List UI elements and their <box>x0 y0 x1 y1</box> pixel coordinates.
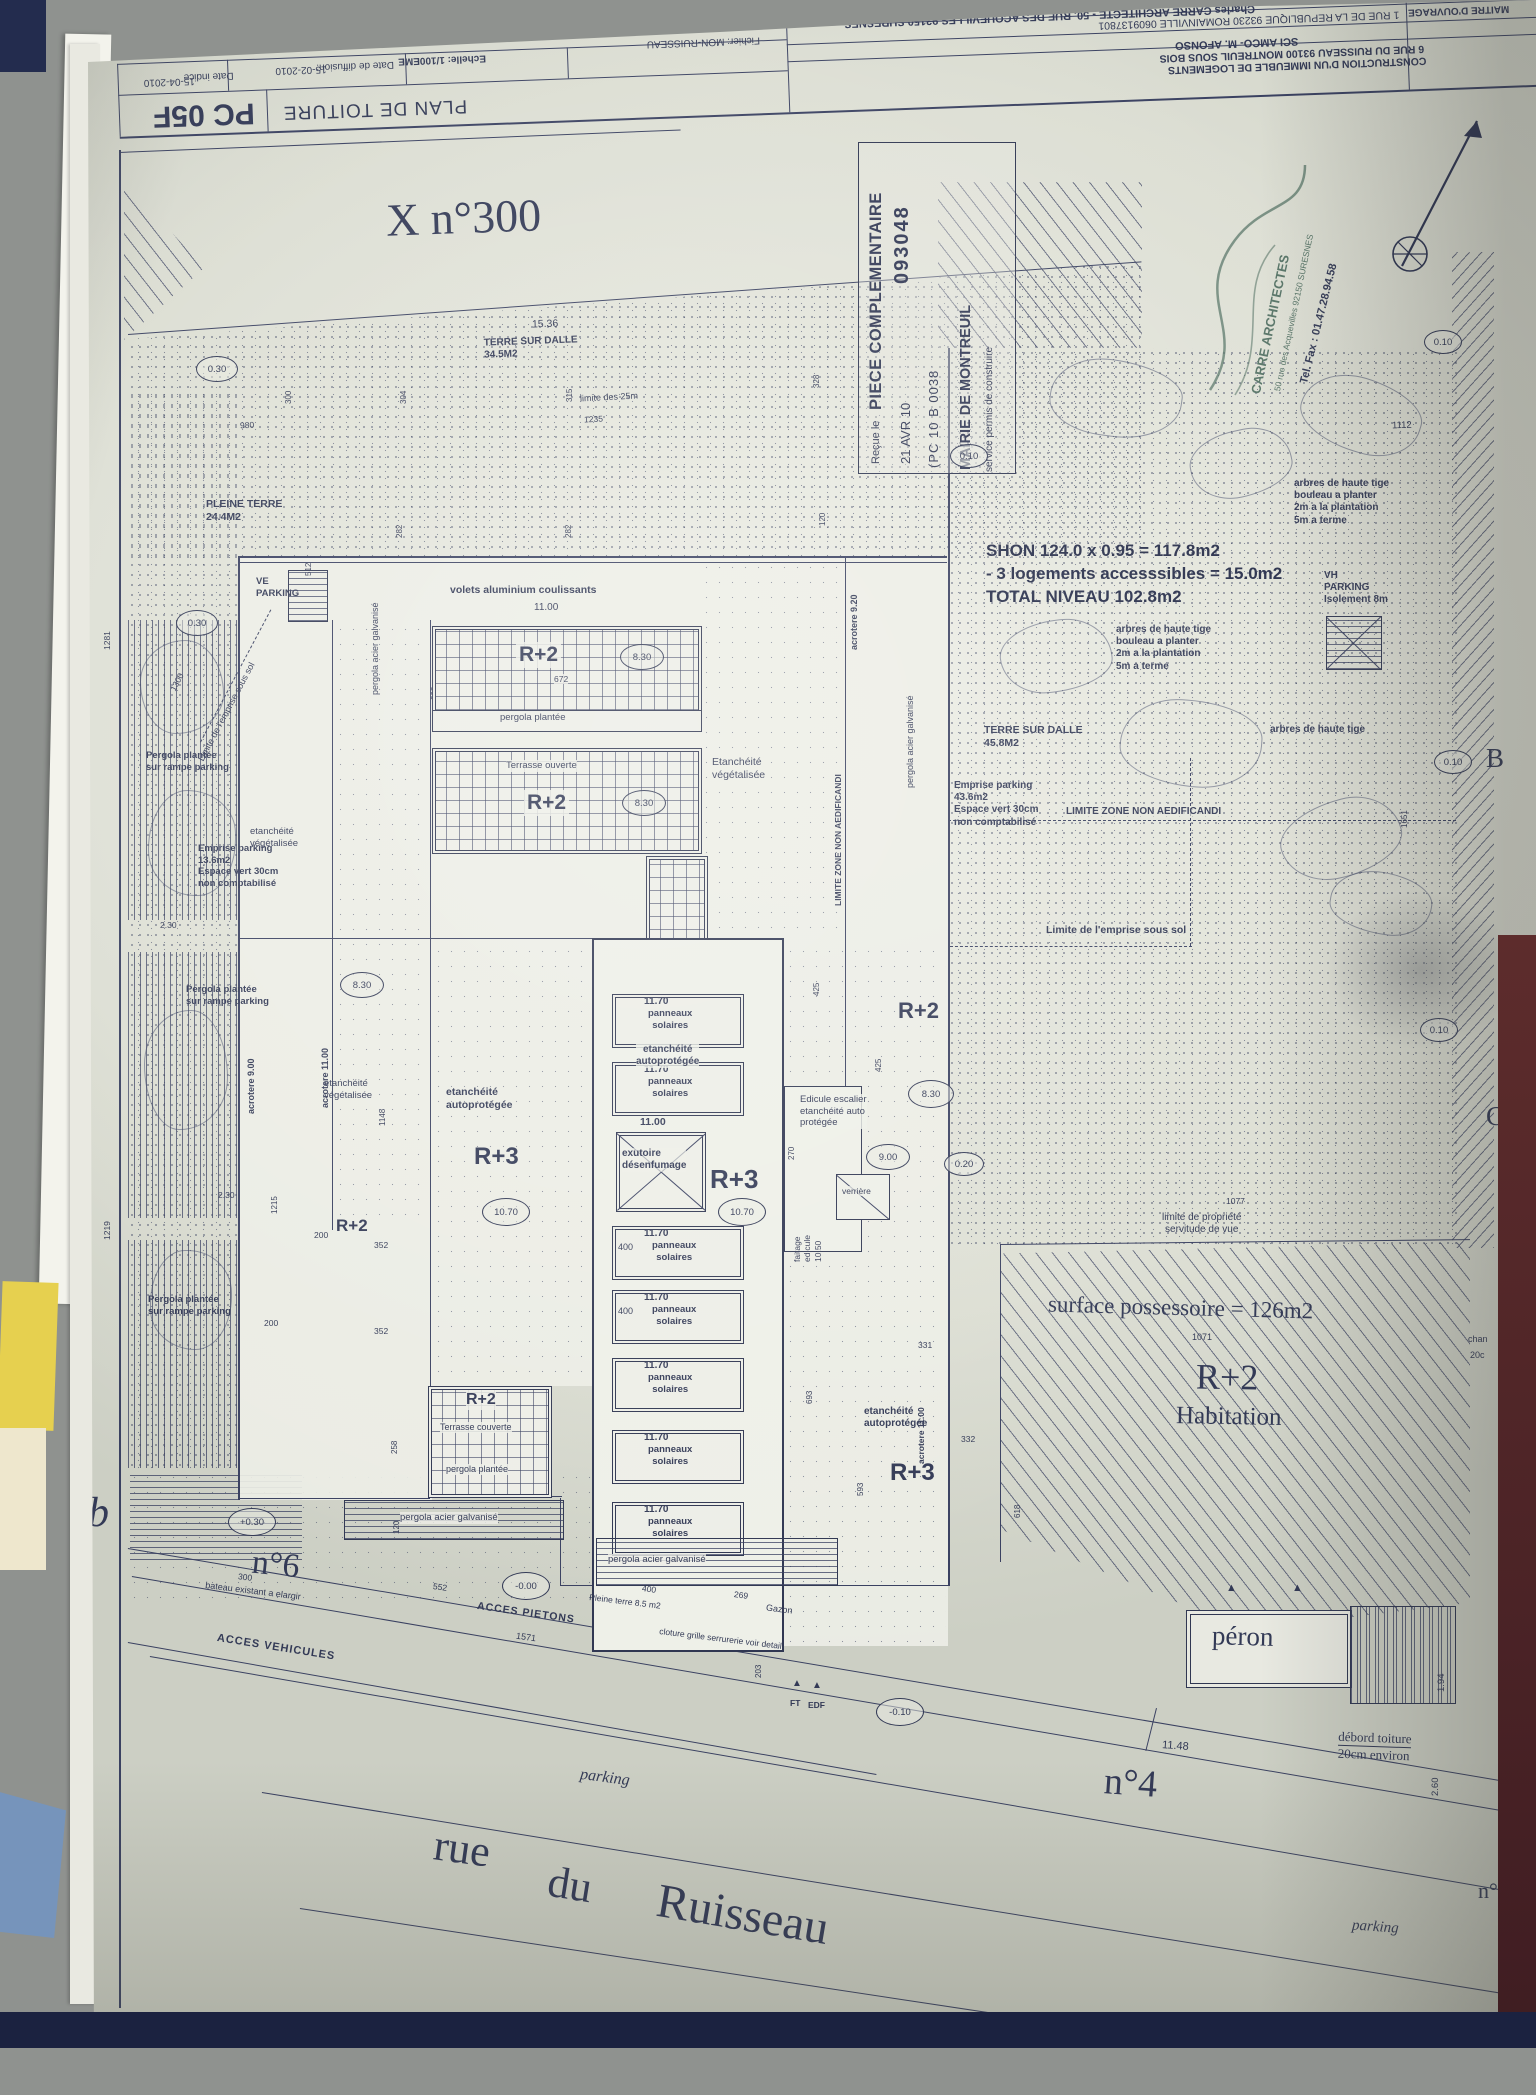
limite-emprise-line <box>950 946 1192 947</box>
label-acces-vehicules: ACCES VEHICULES <box>216 1632 336 1664</box>
title-block-line <box>567 47 569 78</box>
level-label: R+2 <box>524 790 569 816</box>
circle-level: +0.30 <box>228 1508 276 1536</box>
label-line: autoprotégée <box>864 1418 927 1430</box>
dim-label: 1281 <box>102 631 112 650</box>
dim-label: 618 <box>1013 1505 1023 1518</box>
shon-line1: SHON 124.0 x 0.95 = 117.8m2 <box>986 540 1282 563</box>
photo-of-plan: { "colors": { "paper": "#e3e4dc", "ink":… <box>0 0 1536 2048</box>
label-limite-zone-v: LIMITE ZONE NON AEDIFICANDI <box>833 774 843 906</box>
label-line: solaires <box>648 1384 692 1396</box>
label-pergola-plantee: pergola plantée <box>500 712 566 724</box>
maroon-strip-right <box>1498 935 1536 2048</box>
label-line: 5m a terme <box>1116 661 1211 673</box>
label-line: panneaux <box>648 1444 692 1456</box>
roof-center-dots <box>334 622 430 1228</box>
label-line: Isolement 8m <box>1324 594 1388 606</box>
dim-label: 11.00 <box>534 602 558 614</box>
label-line: exutoire <box>622 1148 686 1160</box>
label-peron: péron <box>1212 1619 1274 1654</box>
folder-blue-corner <box>0 1786 66 1938</box>
label-line: solaires <box>648 1020 692 1032</box>
label-acrotere: acrotere 9.20 <box>849 594 860 650</box>
label-verriere: verrière <box>842 1186 871 1196</box>
dim-label: 200 <box>314 1230 328 1240</box>
circle-value: 0.20 <box>955 1159 974 1170</box>
label-line: sur rampe parking <box>146 762 229 774</box>
dim-label: 282 <box>564 525 574 538</box>
label-line: non comptabilisé <box>198 878 278 890</box>
building-edge <box>430 620 431 1386</box>
label-line: panneaux <box>648 1076 692 1088</box>
label-line: panneaux <box>652 1240 696 1252</box>
dim-label: 1235 <box>584 414 603 425</box>
circle-value: 8.30 <box>635 798 654 809</box>
label-pergola-acier: pergola acier galvanisé <box>608 1554 706 1566</box>
circle-value: 10.70 <box>494 1207 518 1218</box>
dim-label: 672 <box>554 674 568 684</box>
label-habitation: Habitation <box>1176 1401 1282 1433</box>
tree-outline <box>144 1010 228 1130</box>
label-line: PLEINE TERRE <box>206 498 282 511</box>
plan-title: X n°300 <box>385 187 542 248</box>
dim-label: 315 <box>565 389 575 402</box>
label-line: solaires <box>648 1456 692 1468</box>
margin-letter-b: B <box>1486 742 1504 775</box>
label-pergola-plantee: pergola plantée <box>446 1464 508 1475</box>
dim-label: 331 <box>918 1340 932 1350</box>
label-arbres: arbres de haute tige <box>1270 724 1365 736</box>
circle-level: 8.30 <box>340 972 384 998</box>
sheet-title: PLAN DE TOITURE <box>283 94 468 124</box>
label-line: 45.8M2 <box>984 737 1083 750</box>
scale-label: Echelle: 1/100EME <box>398 51 486 66</box>
circle-level: 10.70 <box>718 1198 766 1226</box>
label-line: Edicule escalier <box>800 1094 867 1106</box>
dim-label: 425 <box>874 1059 884 1072</box>
label-line: Etanchéité <box>712 756 765 769</box>
dim-label: 1077 <box>1226 1196 1245 1206</box>
circle-value: 8.30 <box>922 1089 941 1100</box>
label-line: 2m a la plantation <box>1116 648 1211 660</box>
dim-label: 300 <box>284 391 294 404</box>
label-arbres-block: arbres de haute tige bouleau a planter 2… <box>1294 478 1389 527</box>
label-r2-habitation: R+2 <box>1196 1355 1259 1400</box>
leader-line <box>1145 1708 1157 1751</box>
label-line: panneaux <box>648 1516 692 1528</box>
ve-parking-box <box>288 570 328 622</box>
label-line: edicule <box>802 1235 812 1262</box>
dim-label: 282 <box>395 525 405 538</box>
diffusion-label: Date de diffusion: <box>316 58 394 73</box>
building-edge <box>238 556 947 558</box>
stamp-date: 21 AVR 10 <box>898 403 914 464</box>
dim-label: 1651 <box>1400 810 1410 828</box>
dim-label: 2.30 <box>218 1190 235 1200</box>
label-parking-right: parking <box>1351 1916 1399 1938</box>
panel-label: panneauxsolaires <box>648 1516 692 1539</box>
circle-level: 0.30 <box>176 610 218 636</box>
dim-label: 304 <box>399 391 409 404</box>
label-line: solaires <box>652 1252 696 1264</box>
circle-level: 0.10 <box>1434 750 1472 774</box>
building-edge <box>560 1585 594 1586</box>
label-line: 43.6m2 <box>954 792 1039 804</box>
dim-label: 400 <box>618 1242 633 1253</box>
label-acrotere: acrotere 9.00 <box>246 1058 257 1114</box>
dim-label: 980 <box>240 420 255 431</box>
circle-value: 0.10 <box>1444 757 1463 768</box>
label-line: etanchéité <box>250 826 298 838</box>
circle-level: 0.20 <box>944 1152 984 1176</box>
dim-label: 200 <box>264 1318 278 1328</box>
label-line: Emprise parking <box>198 843 278 855</box>
dim-label: 1219 <box>102 1221 112 1240</box>
label-edicule: Edicule escalier etanchéité auto protégé… <box>800 1094 867 1129</box>
tree-outline <box>140 640 224 734</box>
label-terrasse-couverte: Terrasse couverte <box>440 1422 512 1433</box>
street-line <box>150 1656 1510 1892</box>
dim-label: 328 <box>812 375 822 388</box>
dim-label: 400 <box>618 1306 633 1317</box>
label-line: autoprotégée <box>636 1056 699 1068</box>
title-block-line <box>117 64 121 137</box>
label-exutoire-height: 11.00 <box>640 1116 666 1129</box>
label-pergola-rampe: Pergola plantée sur rampe parking <box>146 750 229 773</box>
file-label: Fichier: MON-RUISSEAU <box>646 33 760 49</box>
label-terre-sur-dalle-top: TERRE SUR DALLE 34.5M2 <box>484 334 579 362</box>
panel-label: panneauxsolaires <box>652 1304 696 1327</box>
dim-label: 1071 <box>1192 1332 1212 1343</box>
label-limite-emprise: Limite de l'emprise sous sol <box>1046 924 1186 937</box>
label-line: Espace vert 30cm <box>954 804 1039 816</box>
label-pergola-rampe: Pergola plantée sur rampe parking <box>186 984 269 1007</box>
panel-height: 11.70 <box>644 1228 668 1240</box>
dim-label: 1215 <box>270 1196 280 1214</box>
label-line: végétalisée <box>712 769 765 782</box>
label-limite-propriete: limite de propriété servitude de vue <box>1162 1212 1241 1236</box>
arrow-up-icon: ▲ <box>1292 1582 1303 1595</box>
label-line: servitude de vue <box>1162 1224 1241 1236</box>
circle-level: -0.00 <box>502 1572 550 1600</box>
circle-value: 10.70 <box>730 1207 754 1218</box>
label-edf: EDF <box>808 1700 825 1710</box>
circle-level: 0.30 <box>196 356 238 382</box>
circle-level: 8.30 <box>620 644 664 670</box>
dim-label: 425 <box>812 983 822 996</box>
label-vh-parking: VH PARKING Isolement 8m <box>1324 570 1388 607</box>
label-exutoire: exutoire désenfumage <box>622 1148 686 1172</box>
label-emprise-left: Emprise parking 13.6m2 Espace vert 30cm … <box>198 843 278 889</box>
label-line: protégée <box>800 1117 867 1129</box>
label-line: arbres de haute tige <box>1116 624 1211 636</box>
sheet: X n°300 PIECE COMPLEMENTAIRE Reçue le 09… <box>0 0 1536 2048</box>
circle-value: 8.30 <box>633 652 652 663</box>
level-label: R+3 <box>474 1142 519 1171</box>
label-line: sur rampe parking <box>148 1306 231 1318</box>
label-debord: débord toiture 20cm environ <box>1337 1729 1411 1764</box>
x-mark <box>1327 616 1382 669</box>
dim-label: 352 <box>374 1240 388 1250</box>
label-line: 10.50 <box>813 1235 823 1262</box>
label-line: solaires <box>652 1316 696 1328</box>
label-etancheite-vegetalisee-center: Etanchéité végétalisée <box>712 756 765 782</box>
dim-label: 15.36 <box>532 318 559 332</box>
label-emprise-right: Emprise parking 43.6m2 Espace vert 30cm … <box>954 780 1039 829</box>
label-line: panneaux <box>648 1008 692 1020</box>
label-line: panneaux <box>648 1372 692 1384</box>
title-block-line <box>266 89 269 131</box>
label-line: bouleau a planter <box>1294 490 1389 502</box>
circle-level: -0.10 <box>876 1698 924 1726</box>
label-line: 5m a terme <box>1294 515 1389 527</box>
street-line <box>128 1642 877 1775</box>
arrow-up-icon: ▲ <box>812 1680 822 1692</box>
label-etancheite-auto: etanchéité autoprotégée <box>446 1086 513 1112</box>
label-terre-sur-dalle-right: TERRE SUR DALLE 45.8M2 <box>984 724 1083 750</box>
dim-label: 269 <box>733 1589 748 1601</box>
level-label: R+3 <box>710 1164 758 1196</box>
label-pergola-acier: pergola acier galvanisé <box>400 1512 498 1524</box>
label-line: etanchéité auto <box>800 1106 867 1118</box>
label-shon: SHON 124.0 x 0.95 = 117.8m2 - 3 logement… <box>986 540 1282 609</box>
label-n4: n°4 <box>1102 1758 1158 1808</box>
panel-height: 11.70 <box>644 1292 668 1304</box>
building-edge <box>238 938 592 939</box>
label-pergola-acier-v: pergola acier galvanisé <box>905 695 916 788</box>
panel-label: panneauxsolaires <box>648 1008 692 1031</box>
verriere-box <box>836 1174 890 1220</box>
label-line: arbres de haute tige <box>1294 478 1389 490</box>
circle-level: 10.70 <box>482 1198 530 1226</box>
circle-level: 0.10 <box>1424 330 1462 354</box>
label-line: Espace vert 30cm <box>198 866 278 878</box>
panel-label: panneauxsolaires <box>648 1444 692 1467</box>
building-edge <box>332 620 333 1230</box>
circle-value: -0.10 <box>889 1707 911 1718</box>
label-line: autoprotégée <box>446 1099 513 1112</box>
x-mark <box>836 1175 889 1219</box>
panel-label: panneauxsolaires <box>648 1372 692 1395</box>
label-line: PARKING <box>1324 582 1388 594</box>
arrow-up-icon: ▲ <box>1226 1582 1237 1595</box>
panel-height: 11.70 <box>644 1432 668 1444</box>
level-label: R+2 <box>516 642 561 668</box>
label-line: etanchéité <box>636 1044 699 1056</box>
circle-value: 0.30 <box>208 364 227 375</box>
label-line: 24.4M2 <box>206 511 282 524</box>
dim-label: 1112 <box>1392 420 1412 432</box>
label-etancheite-veg-left: etanchéité végétalisée <box>324 1078 372 1101</box>
navy-corner <box>0 0 46 72</box>
circle-value: -0.00 <box>515 1581 537 1592</box>
label-volets: volets aluminium coulissants <box>450 584 596 597</box>
label-pleine-terre: PLEINE TERRE 24.4M2 <box>206 498 282 524</box>
dim-label: 552 <box>432 1581 447 1593</box>
panel-height: 11.70 <box>644 996 668 1008</box>
level-label: R+2 <box>336 1216 368 1237</box>
label-line: etanchéité <box>324 1078 372 1090</box>
dim-label: 11.48 <box>1162 1739 1190 1754</box>
circle-level: 0.10 <box>950 444 988 468</box>
circle-value: 9.00 <box>879 1152 898 1163</box>
hatch-top-left-triangle <box>124 180 204 340</box>
building-edge <box>238 562 947 563</box>
label-line: faitage <box>792 1235 802 1262</box>
circle-level: 8.30 <box>622 790 666 816</box>
panel-height: 11.70 <box>644 1360 668 1372</box>
indice-label: Date indice <box>183 69 233 83</box>
label-line: Pergola plantée <box>186 984 269 996</box>
label-etancheite-auto: etanchéité autoprotégée <box>636 1044 699 1068</box>
label-line: Emprise parking <box>954 780 1039 792</box>
level-label: R+3 <box>890 1458 935 1487</box>
street-name-rue: rue <box>431 1818 494 1879</box>
label-parking-center: parking <box>579 1765 631 1791</box>
street-name-ruisseau: Ruisseau <box>652 1872 833 1958</box>
dim-label: 270 <box>787 1147 797 1160</box>
north-arrow-icon <box>1372 96 1502 286</box>
moa-label: MAITRE D'OUVRAGE <box>1408 2 1510 18</box>
level-label: R+2 <box>466 1390 496 1410</box>
label-n6: n°6 <box>250 1542 302 1588</box>
stamp-piece-complementaire: PIECE COMPLEMENTAIRE <box>866 192 886 410</box>
label-line: bouleau a planter <box>1116 636 1211 648</box>
label-ft: FT <box>790 1698 800 1708</box>
label-line: etanchéité <box>446 1086 513 1099</box>
circle-level: 9.00 <box>866 1144 910 1170</box>
street-line <box>300 1908 1526 2095</box>
dim-label: 332 <box>961 1434 975 1444</box>
terrace-small-block <box>646 856 708 944</box>
circle-value: +0.30 <box>240 1517 264 1528</box>
label-pergola-acier-v: pergola acier galvanisé <box>370 602 381 695</box>
label-etancheite-auto: etanchéité autoprotégée <box>864 1406 927 1430</box>
dim-label: 593 <box>856 1483 866 1496</box>
panel-label: panneauxsolaires <box>648 1076 692 1099</box>
dim-label: 1.94 <box>1436 1674 1448 1693</box>
arrow-up-icon: ▲ <box>792 1678 802 1690</box>
label-limite-zone: LIMITE ZONE NON AEDIFICANDI <box>1066 806 1221 818</box>
dim-label: 203 <box>754 1665 764 1678</box>
label-line: Pergola plantée <box>146 750 229 762</box>
sticky-note <box>0 1281 59 1431</box>
label-line: sur rampe parking <box>186 996 269 1008</box>
label-faitage: faitage edicule 10.50 <box>792 1235 823 1262</box>
vh-parking-box <box>1326 616 1382 670</box>
sheet-code: PC 05F <box>152 94 255 134</box>
dim-label: 400 <box>641 1583 656 1595</box>
dim-label: 352 <box>374 1326 388 1336</box>
panel-height: 11.70 <box>644 1504 668 1516</box>
label-line: etanchéité <box>864 1406 927 1418</box>
stamp-ref: (PC 10 B 0038 <box>926 370 942 468</box>
label-line: végétalisée <box>324 1090 372 1102</box>
label-n-partial: n° <box>1478 1878 1498 1905</box>
label-terrasse-ouverte: Terrasse ouverte <box>506 760 577 772</box>
cream-paper <box>0 1428 46 1570</box>
dim-label: 2.30 <box>160 920 177 930</box>
dim-label: 120 <box>818 513 828 526</box>
circle-level: 8.30 <box>908 1080 954 1108</box>
circle-value: 8.30 <box>353 980 372 991</box>
stamp-number: 093048 <box>890 205 914 284</box>
title-block-line <box>785 0 791 112</box>
label-line: panneaux <box>652 1304 696 1316</box>
dim-label: 2.60 <box>1430 1778 1442 1797</box>
label-line: désenfumage <box>622 1160 686 1172</box>
label-line: solaires <box>648 1088 692 1100</box>
label-line: limite de propriété <box>1162 1212 1241 1224</box>
label-line: 2m a la plantation <box>1294 502 1389 514</box>
margin-text-20c: 20c <box>1470 1350 1485 1361</box>
label-line: 13.6m2 <box>198 855 278 867</box>
pergola-band <box>432 710 702 732</box>
label-line: TERRE SUR DALLE <box>984 724 1083 737</box>
building-edge <box>948 348 950 1586</box>
stamp-recue-le: Reçue le <box>870 421 883 464</box>
dim-label: 300 <box>237 1571 252 1583</box>
circle-value: 0.30 <box>188 618 207 629</box>
shon-line2: - 3 logements accesssibles = 15.0m2 <box>986 563 1282 586</box>
label-arbres-block: arbres de haute tige bouleau a planter 2… <box>1116 624 1211 673</box>
label-line: 20cm environ <box>1337 1746 1411 1764</box>
frame-line <box>119 150 121 2008</box>
street-name-du: du <box>544 1855 596 1915</box>
shon-line3: TOTAL NIVEAU 102.8m2 <box>986 586 1282 609</box>
title-block: PC 05F PLAN DE TOITURE 15-04-2010 Date i… <box>85 0 1536 148</box>
circle-value: 0.10 <box>960 451 979 462</box>
label-line: Pergola plantée <box>148 1294 231 1306</box>
label-line: VH <box>1324 570 1388 582</box>
dim-label: 258 <box>390 1441 400 1454</box>
panel-label: panneauxsolaires <box>652 1240 696 1263</box>
margin-text-chan: chan <box>1468 1334 1488 1345</box>
dim-label: 693 <box>805 1391 815 1404</box>
dim-label: 1148 <box>378 1109 388 1126</box>
roof-vegetal-center <box>700 560 846 938</box>
navy-strip-bottom <box>0 2012 1536 2048</box>
label-line: non comptabilisé <box>954 817 1039 829</box>
neighbour-boundary <box>1000 1244 1001 1562</box>
level-label: R+2 <box>898 998 939 1025</box>
circle-value: 0.10 <box>1434 337 1453 348</box>
label-pergola-rampe: Pergola plantée sur rampe parking <box>148 1294 231 1317</box>
